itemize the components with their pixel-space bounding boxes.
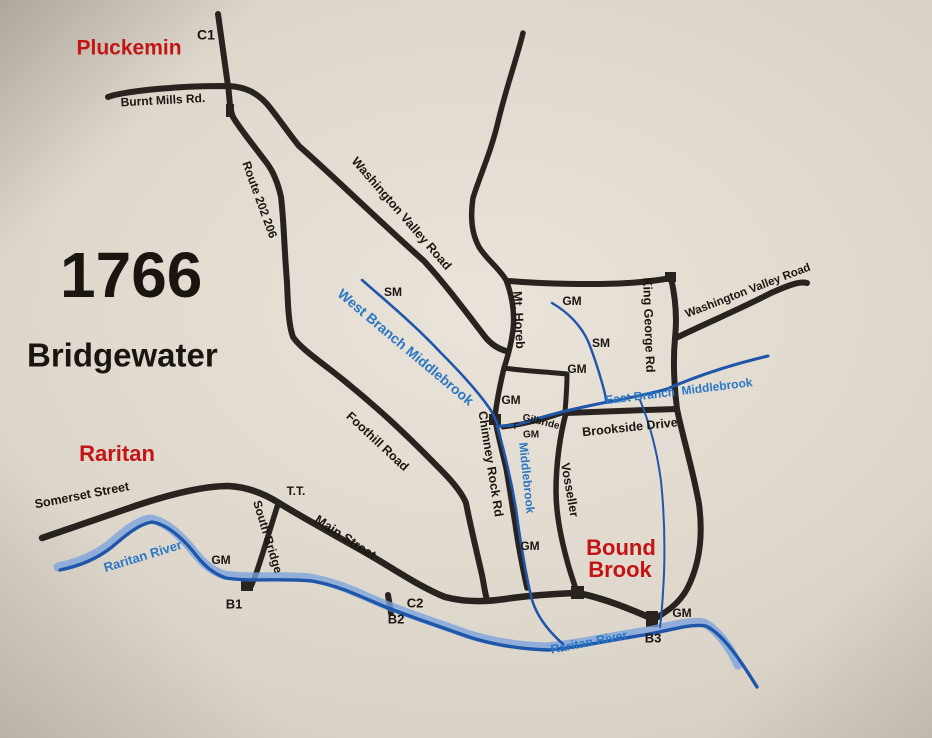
marker-gm-lower-box: GM — [567, 362, 586, 376]
label-king-george-rd: King George Rd — [640, 277, 657, 373]
marker-gm-bound-brook: GM — [672, 606, 691, 620]
road-burnt-mills-washington-valley — [108, 86, 506, 351]
west-branch-middlebrook-stream — [362, 280, 497, 423]
marker-sm-tributary: SM — [592, 336, 610, 350]
road-mt-horeb — [472, 33, 523, 416]
bridge-marker-b3 — [646, 611, 658, 627]
marker-gm-upper-box: GM — [562, 294, 581, 308]
label-tt-tavern: T.T. — [287, 484, 306, 498]
place-pluckemin: Pluckemin — [76, 37, 181, 60]
map-town: Bridgewater — [27, 337, 218, 374]
marker-sm-west-branch: SM — [384, 285, 402, 299]
marker-c1: C1 — [197, 27, 215, 43]
label-raritan-river-east: Raritan River — [549, 628, 628, 657]
marker-f: F — [514, 422, 519, 431]
marker-b1: B1 — [226, 596, 243, 611]
place-bound-brook-line2: Brook — [588, 557, 652, 582]
label-vosseller: Vosseller — [558, 462, 581, 518]
map-title: 1766 Bridgewater — [27, 239, 218, 374]
label-middlebrook: Middlebrook — [516, 442, 537, 515]
sm-tributary-stream — [552, 303, 606, 401]
hand-drawn-map: 1766 Bridgewater Pluckemin Raritan Bound… — [0, 0, 932, 738]
label-washington-valley-center: Washington Valley Road — [349, 154, 454, 272]
label-main-street: Main Street — [312, 512, 379, 563]
label-brookside-drive: Brookside Drive — [582, 415, 679, 439]
label-south-bridge: South Bridge — [250, 499, 286, 575]
junction-marker-vosseller — [571, 586, 584, 599]
marker-c2: C2 — [407, 595, 424, 610]
label-washington-valley-east: Washington Valley Road — [684, 262, 813, 321]
marker-gm-middlebrook: GM — [520, 539, 539, 553]
road-brookside-drive — [566, 409, 677, 413]
marker-b2: B2 — [388, 611, 405, 626]
marker-gm-raritan: GM — [211, 553, 230, 567]
map-year: 1766 — [60, 239, 202, 311]
map-canvas: 1766 Bridgewater Pluckemin Raritan Bound… — [0, 0, 932, 738]
label-somerset-street: Somerset Street — [33, 479, 131, 511]
marker-gm-gilbride: GM — [523, 430, 539, 441]
label-foothill-road: Foothill Road — [344, 409, 412, 474]
junction-marker-route202 — [226, 104, 234, 117]
corner-marker-king-george — [665, 272, 676, 282]
place-raritan: Raritan — [79, 441, 155, 466]
marker-b3: B3 — [645, 630, 662, 645]
bound-brook-stream — [640, 400, 664, 627]
marker-gm-confluence: GM — [501, 393, 520, 407]
